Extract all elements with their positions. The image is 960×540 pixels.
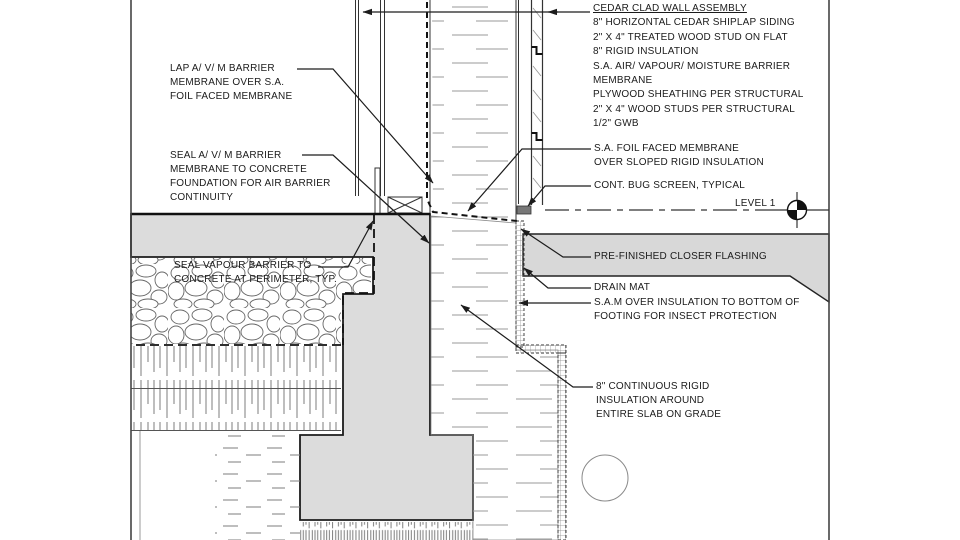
callout-rigid-insulation: 8" CONTINUOUS RIGID INSULATION AROUND EN…	[596, 380, 721, 422]
level-1-datum	[545, 192, 829, 228]
callout-flashing: PRE-FINISHED CLOSER FLASHING	[594, 250, 767, 264]
earth-hatch-upper	[131, 346, 341, 388]
level-1-label: LEVEL 1	[735, 197, 776, 211]
detail-bubble	[582, 455, 628, 501]
earth-hatch-lower	[131, 389, 341, 430]
callout-cedar-wall-assembly: CEDAR CLAD WALL ASSEMBLY 8" HORIZONTAL C…	[593, 2, 804, 132]
granular-fill	[215, 431, 300, 540]
callout-sam-insect: S.A.M OVER INSULATION TO BOTTOM OF FOOTI…	[594, 296, 800, 324]
callout-foil-membrane: S.A. FOIL FACED MEMBRANE OVER SLOPED RIG…	[594, 142, 764, 170]
callout-drain-mat: DRAIN MAT	[594, 281, 650, 295]
callout-seal-vapour: SEAL VAPOUR BARRIER TO CONCRETE AT PERIM…	[174, 259, 337, 287]
assembly-heading: CEDAR CLAD WALL ASSEMBLY	[593, 2, 804, 16]
construction-detail-drawing: CEDAR CLAD WALL ASSEMBLY 8" HORIZONTAL C…	[0, 0, 960, 540]
shiplap-joint-icon	[532, 133, 543, 140]
membrane-upturn	[375, 168, 380, 214]
callout-lap-barrier: LAP A/ V/ M BARRIER MEMBRANE OVER S.A. F…	[170, 62, 292, 104]
exterior-grade	[523, 234, 829, 302]
bug-screen-block	[517, 206, 531, 214]
drawing-canvas	[0, 0, 960, 540]
callout-bug-screen: CONT. BUG SCREEN, TYPICAL	[594, 179, 745, 193]
callout-seal-barrier: SEAL A/ V/ M BARRIER MEMBRANE TO CONCRET…	[170, 149, 331, 205]
shiplap-joint-icon	[532, 47, 543, 54]
cedar-siding	[532, 0, 543, 205]
earth-under-footing	[300, 522, 473, 540]
leader-bug-screen	[528, 186, 591, 206]
wall-rigid-insulation	[432, 0, 516, 221]
